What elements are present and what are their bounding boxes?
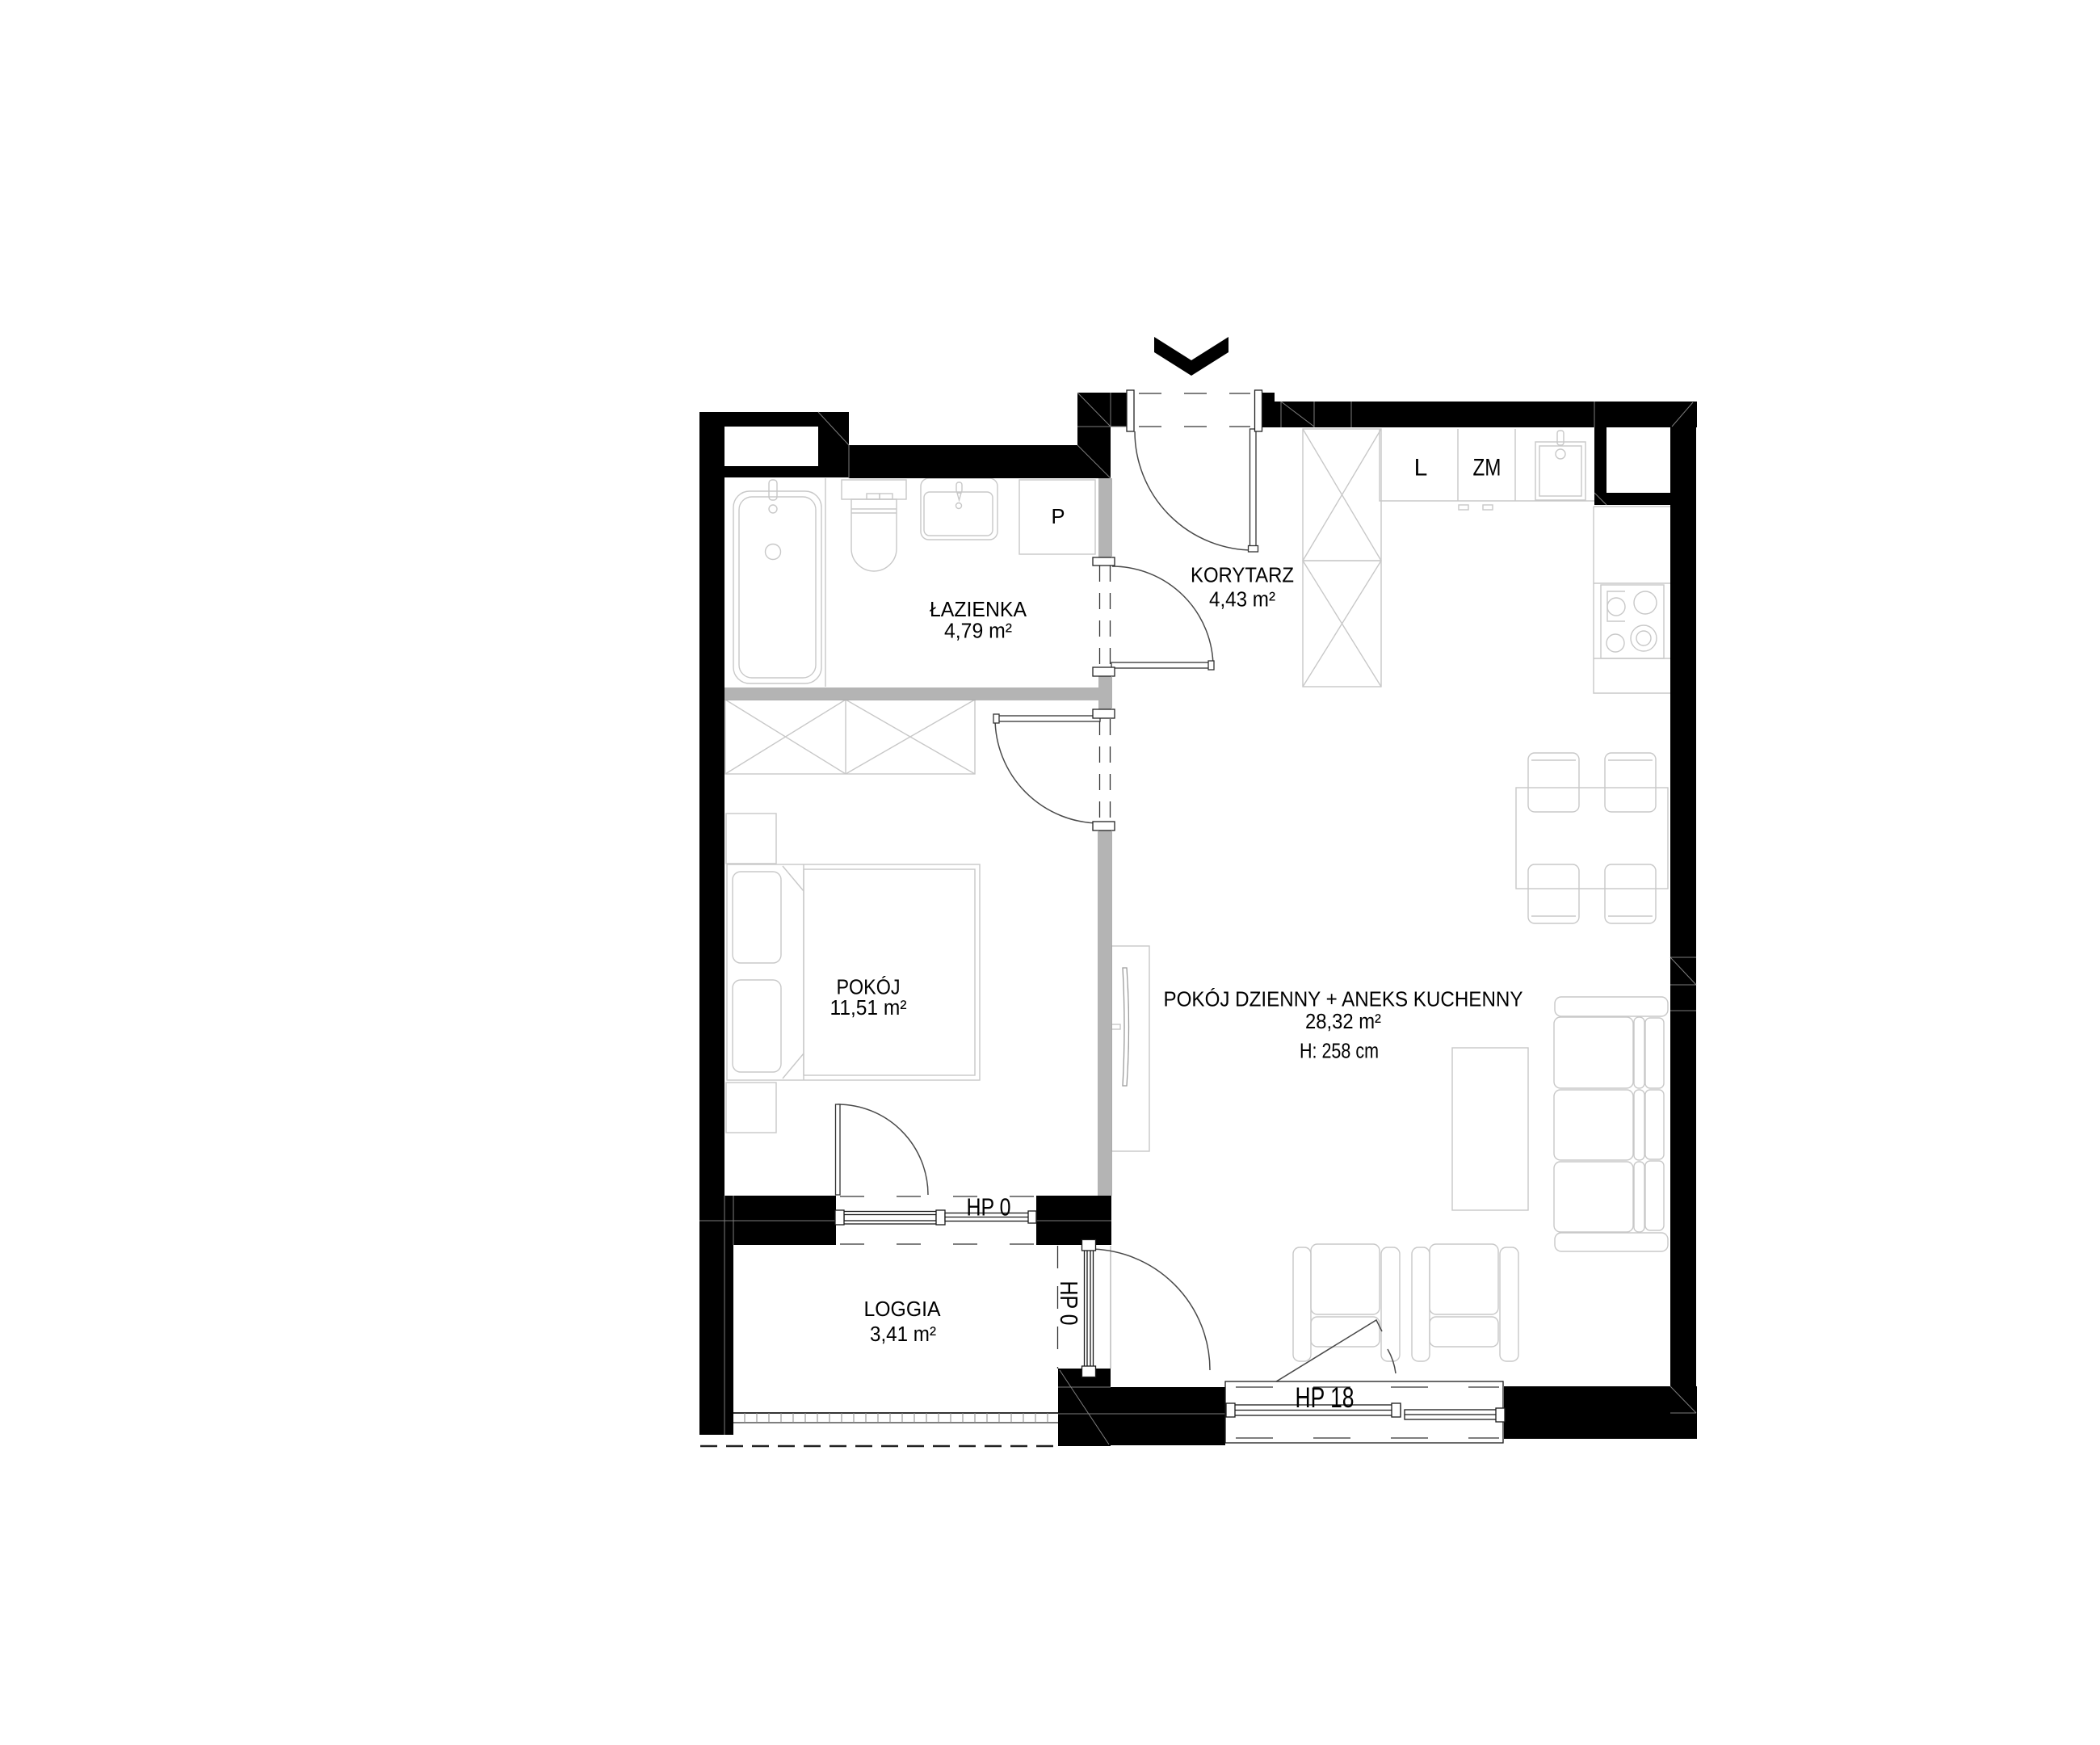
svg-text:HP 0: HP 0 <box>967 1193 1011 1221</box>
svg-text:LOGGIA: LOGGIA <box>864 1298 941 1321</box>
svg-text:4,43 m²: 4,43 m² <box>1209 589 1275 612</box>
svg-text:ZM: ZM <box>1473 455 1501 481</box>
svg-text:11,51 m²: 11,51 m² <box>830 997 907 1020</box>
svg-text:P: P <box>1051 506 1065 528</box>
svg-text:H: 258 cm: H: 258 cm <box>1300 1041 1379 1063</box>
svg-text:HP 18: HP 18 <box>1296 1382 1354 1414</box>
svg-text:3,41 m²: 3,41 m² <box>870 1323 936 1346</box>
svg-text:POKÓJ: POKÓJ <box>837 976 901 999</box>
svg-text:POKÓJ DZIENNY + ANEKS KUCHENNY: POKÓJ DZIENNY + ANEKS KUCHENNY <box>1164 988 1523 1011</box>
svg-text:L: L <box>1414 455 1428 481</box>
svg-text:HP 0: HP 0 <box>1055 1281 1083 1326</box>
svg-text:4,79 m²: 4,79 m² <box>944 620 1012 643</box>
svg-text:28,32 m²: 28,32 m² <box>1305 1011 1381 1033</box>
svg-text:KORYTARZ: KORYTARZ <box>1191 565 1294 587</box>
svg-text:ŁAZIENKA: ŁAZIENKA <box>930 599 1027 621</box>
